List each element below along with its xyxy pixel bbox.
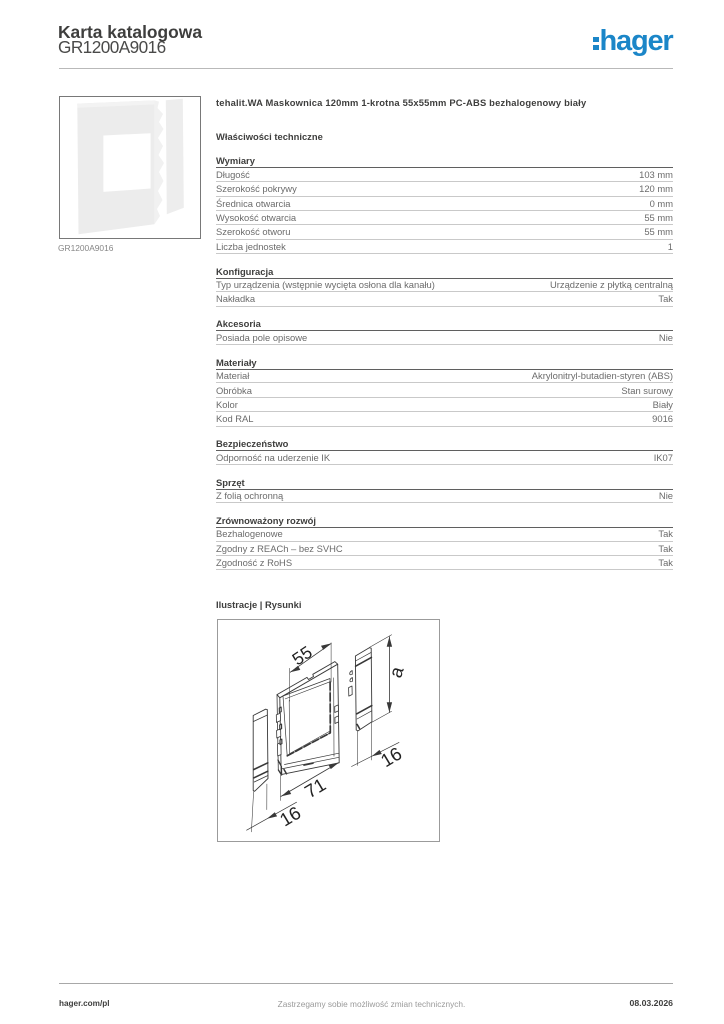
svg-text:71: 71 bbox=[301, 773, 329, 802]
svg-text:16: 16 bbox=[276, 801, 304, 830]
svg-text:16: 16 bbox=[377, 742, 405, 771]
svg-text:55: 55 bbox=[288, 641, 315, 668]
svg-text:a: a bbox=[385, 663, 408, 680]
